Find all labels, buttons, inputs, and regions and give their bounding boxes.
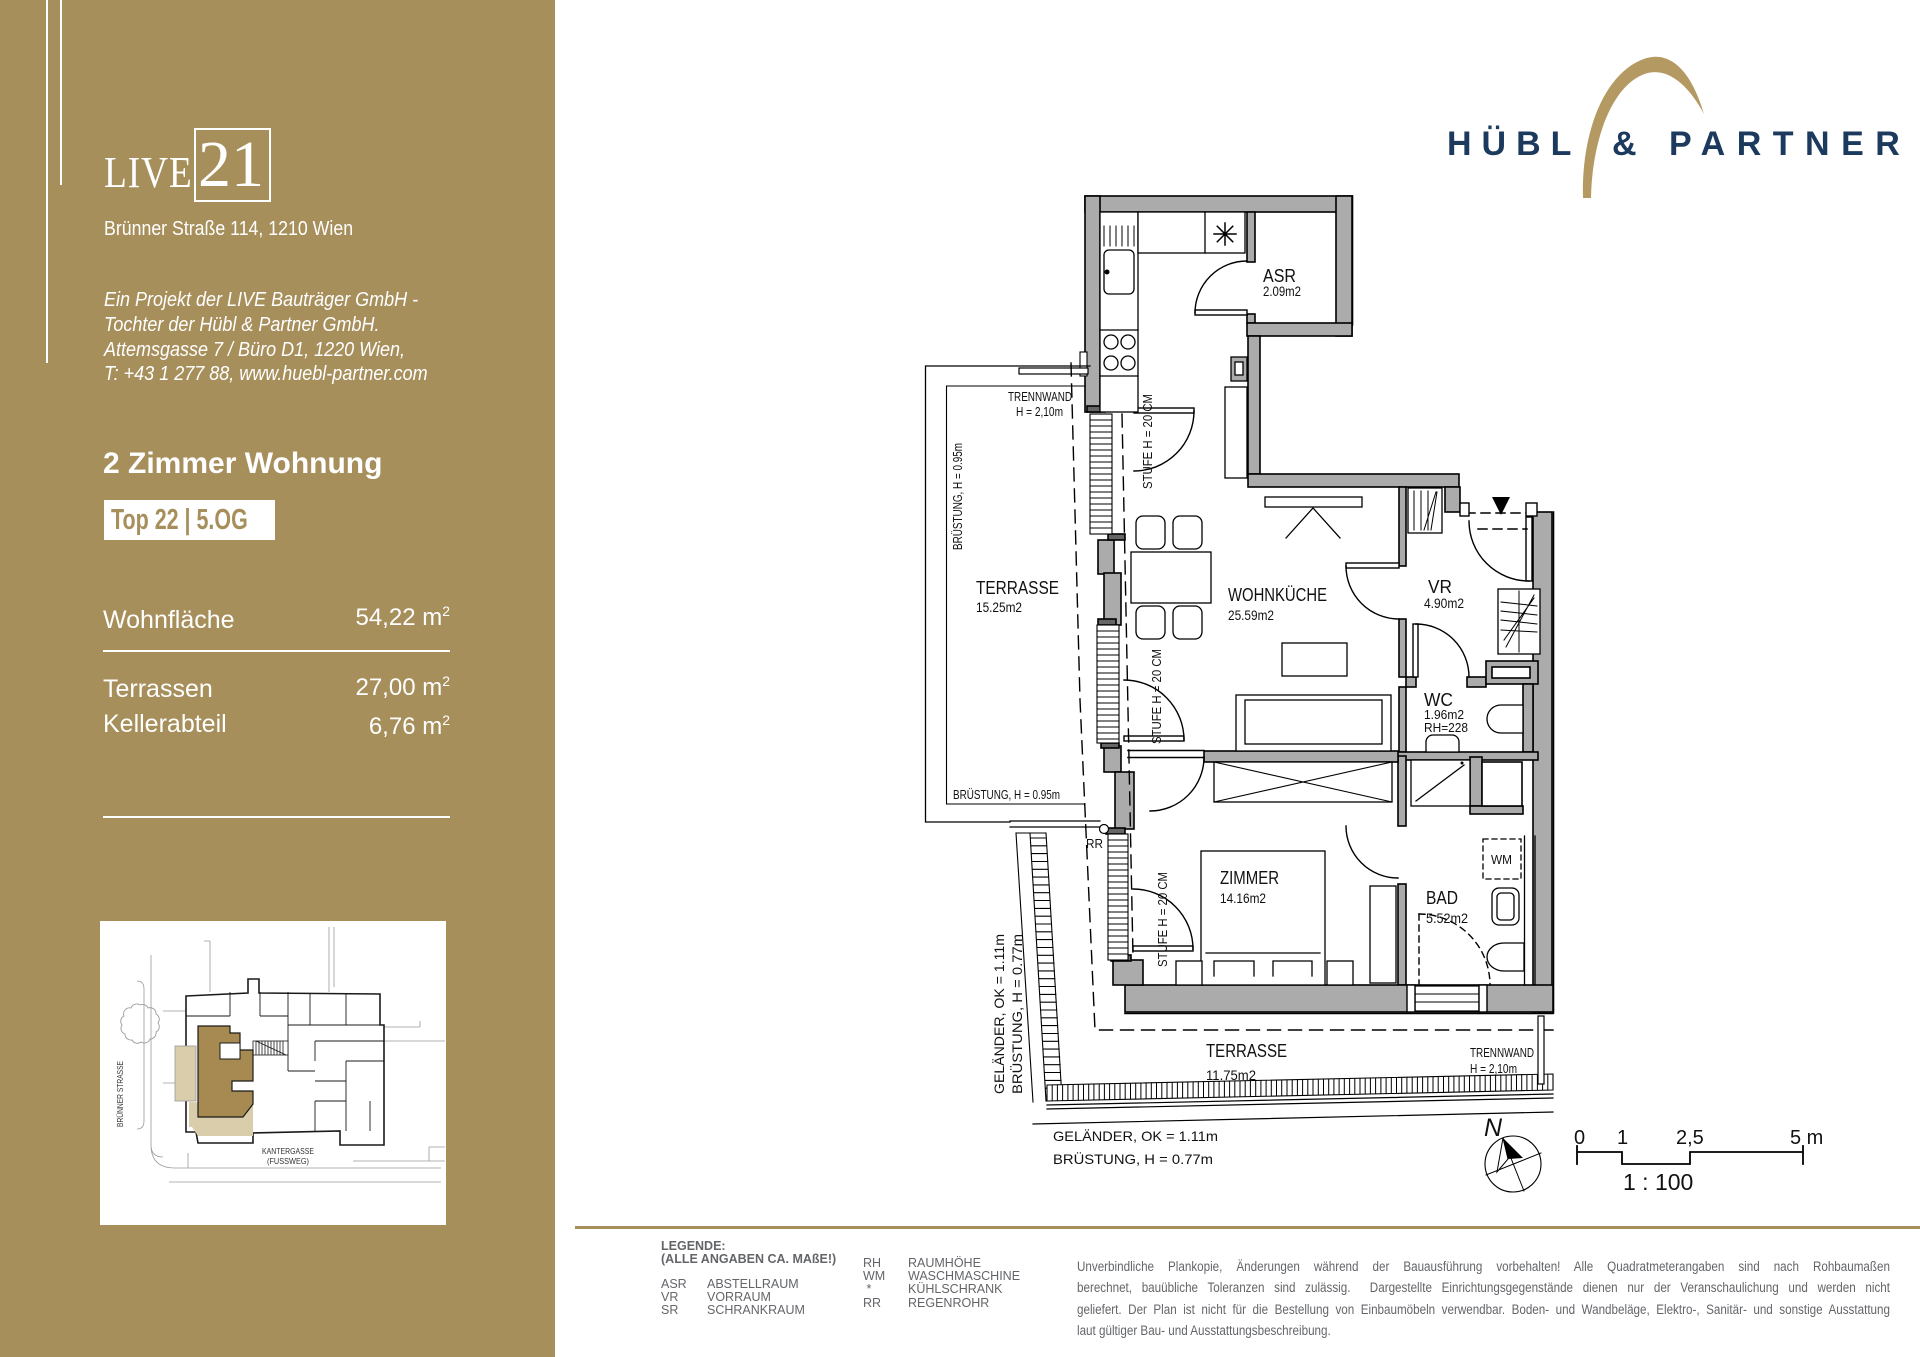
svg-text:H = 2,10m: H = 2,10m [1470, 1062, 1517, 1076]
svg-text:TERRASSE: TERRASSE [976, 578, 1059, 598]
svg-text:1 : 100: 1 : 100 [1623, 1169, 1693, 1195]
svg-text:25.59m2: 25.59m2 [1228, 608, 1274, 623]
svg-text:RR: RR [1086, 837, 1103, 851]
svg-text:2,5: 2,5 [1676, 1127, 1704, 1149]
svg-text:N: N [1484, 1114, 1503, 1142]
svg-text:2.09m2: 2.09m2 [1263, 284, 1301, 299]
svg-text:STUFE H = 20 CM: STUFE H = 20 CM [1150, 649, 1164, 744]
svg-text:STUFE H = 20 CM: STUFE H = 20 CM [1141, 394, 1155, 489]
svg-text:BRÜSTUNG, H = 0.77m: BRÜSTUNG, H = 0.77m [1053, 1150, 1213, 1167]
svg-text:BRÜSTUNG, H = 0.95m: BRÜSTUNG, H = 0.95m [951, 443, 965, 550]
svg-text:5 m: 5 m [1790, 1127, 1823, 1149]
svg-text:BRÜSTUNG, H = 0.95m: BRÜSTUNG, H = 0.95m [953, 788, 1060, 802]
svg-text:ZIMMER: ZIMMER [1220, 868, 1279, 888]
svg-text:H = 2,10m: H = 2,10m [1016, 405, 1063, 419]
svg-text:TRENNWAND: TRENNWAND [1008, 390, 1072, 404]
svg-text:GELÄNDER, OK = 1.11m: GELÄNDER, OK = 1.11m [992, 934, 1007, 1094]
svg-text:GELÄNDER, OK = 1.11m: GELÄNDER, OK = 1.11m [1053, 1128, 1218, 1144]
svg-text:1: 1 [1617, 1127, 1628, 1149]
svg-text:WM: WM [1491, 853, 1512, 867]
svg-text:TERRASSE: TERRASSE [1206, 1041, 1287, 1061]
svg-text:TRENNWAND: TRENNWAND [1470, 1046, 1534, 1060]
svg-text:BAD: BAD [1426, 888, 1458, 908]
svg-text:15.25m2: 15.25m2 [976, 600, 1022, 615]
svg-text:5.52m2: 5.52m2 [1426, 911, 1468, 926]
svg-text:0: 0 [1574, 1127, 1585, 1149]
svg-text:ASR: ASR [1263, 266, 1296, 286]
svg-text:WOHNKÜCHE: WOHNKÜCHE [1228, 585, 1327, 605]
svg-text:BRÜSTUNG, H = 0.77m: BRÜSTUNG, H = 0.77m [1010, 934, 1025, 1094]
svg-text:STUFE H = 20 CM: STUFE H = 20 CM [1156, 872, 1170, 967]
svg-text:RH=228: RH=228 [1424, 720, 1468, 735]
svg-text:14.16m2: 14.16m2 [1220, 891, 1266, 906]
svg-text:VR: VR [1428, 577, 1452, 597]
svg-text:4.90m2: 4.90m2 [1424, 596, 1464, 611]
svg-text:11.75m2: 11.75m2 [1206, 1068, 1256, 1083]
